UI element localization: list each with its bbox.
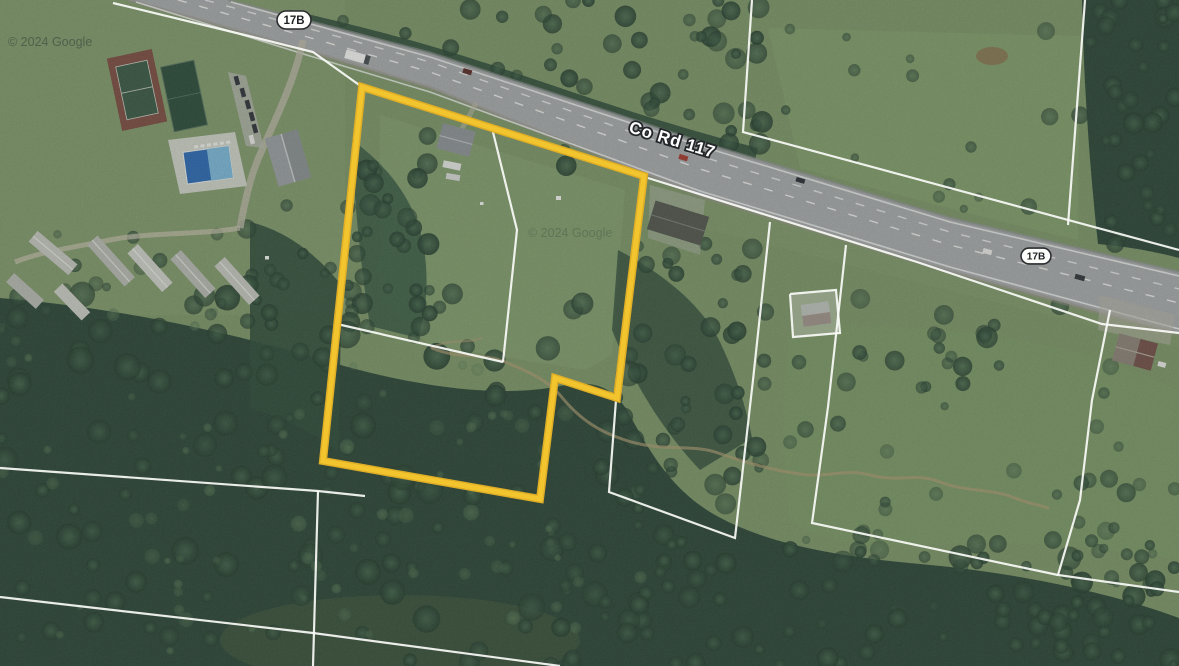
terrain-texture — [0, 0, 1179, 666]
satellite-map-view[interactable]: © 2024 Google © 2024 Google Co Rd 117 17… — [0, 0, 1179, 666]
watermark-center: © 2024 Google — [528, 226, 612, 240]
route-shield-label: 17B — [1027, 252, 1046, 263]
route-shield-17b-west: 17B — [277, 11, 311, 29]
route-shield-17b-east: 17B — [1021, 248, 1051, 264]
route-shield-label: 17B — [283, 15, 304, 27]
small-parcel-ground — [790, 290, 840, 337]
watermark-topleft: © 2024 Google — [8, 35, 92, 49]
satellite-map[interactable]: © 2024 Google © 2024 Google Co Rd 117 17… — [0, 0, 1179, 666]
